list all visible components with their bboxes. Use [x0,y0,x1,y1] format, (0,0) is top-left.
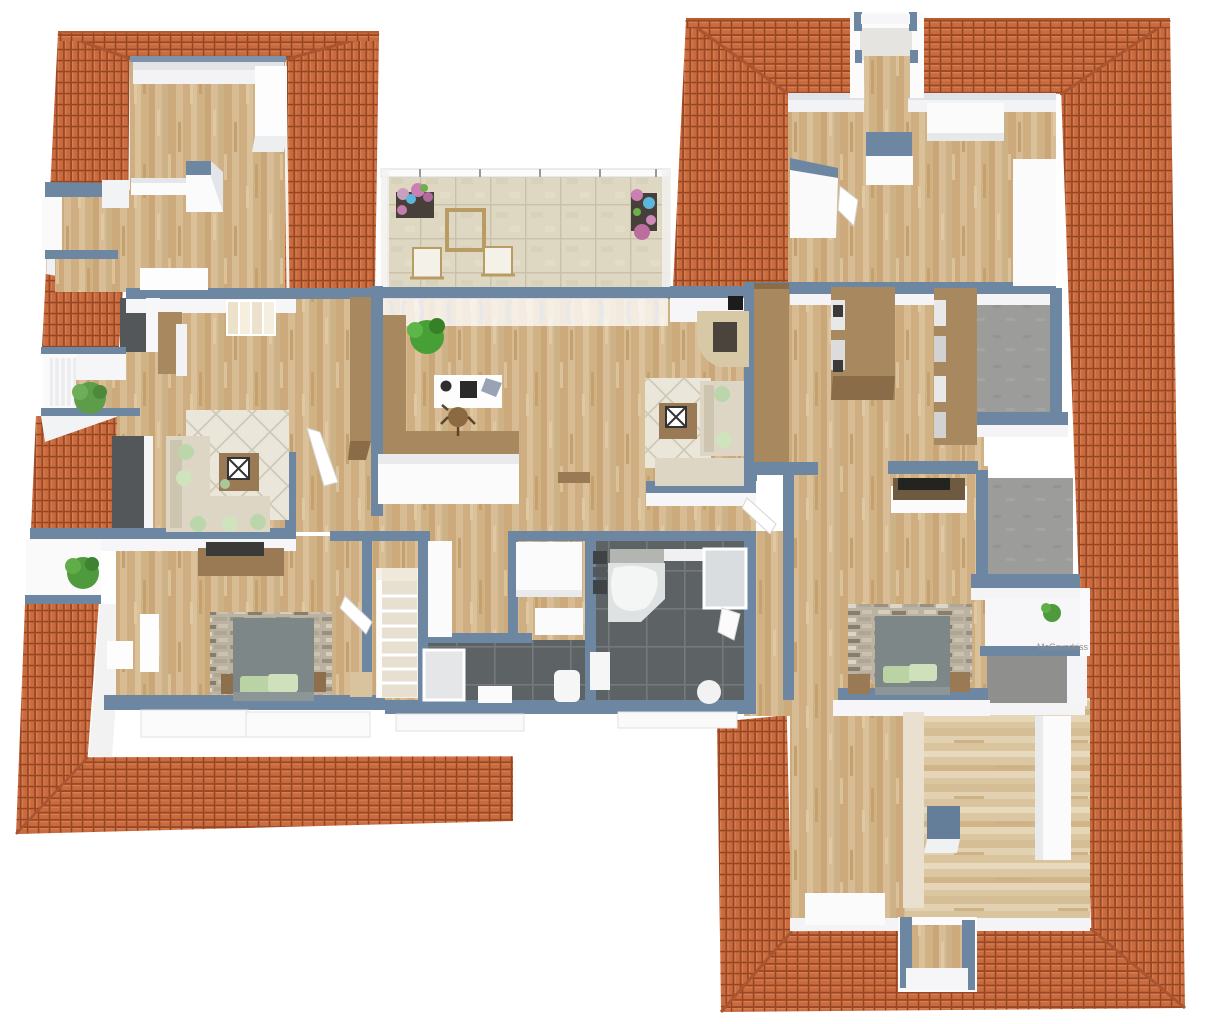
svg-text:McGrundriss: McGrundriss [1037,642,1089,652]
